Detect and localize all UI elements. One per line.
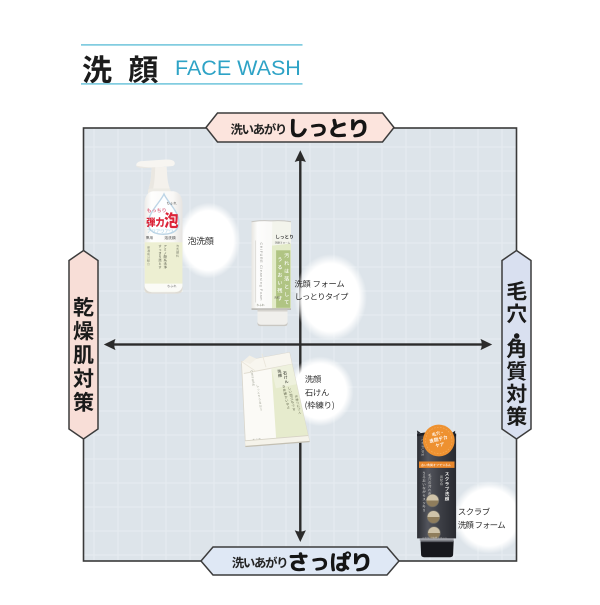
svg-text:CHIFURE Cleansing Foam: CHIFURE Cleansing Foam bbox=[259, 243, 263, 302]
svg-text:FACE WASH: FACE WASH bbox=[175, 56, 301, 80]
